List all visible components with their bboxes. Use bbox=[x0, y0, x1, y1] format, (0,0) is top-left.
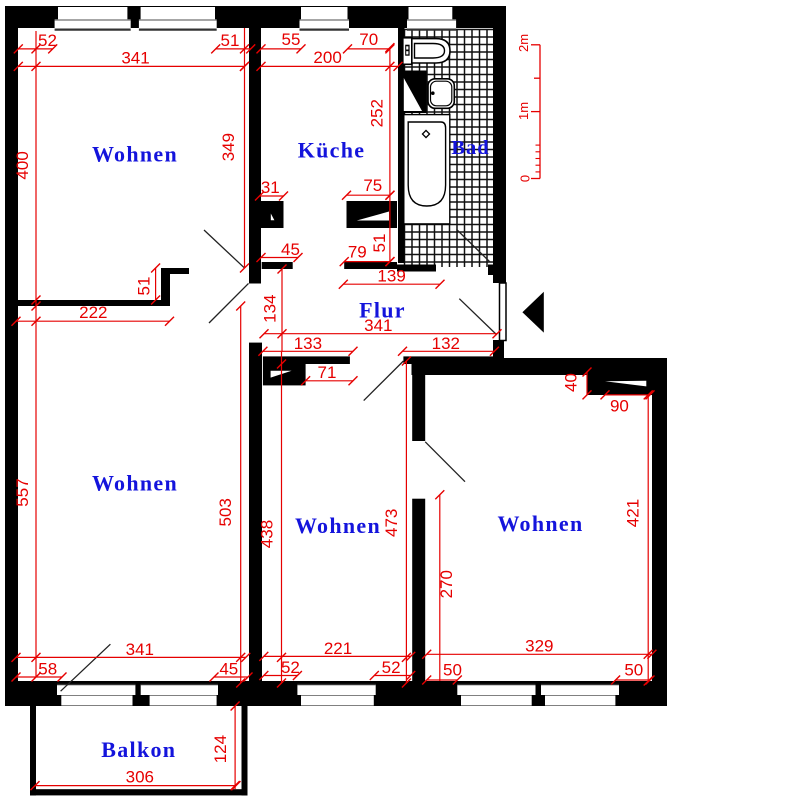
svg-text:50: 50 bbox=[443, 661, 462, 680]
svg-text:51: 51 bbox=[135, 277, 154, 296]
svg-text:45: 45 bbox=[281, 240, 300, 259]
svg-text:52: 52 bbox=[382, 658, 401, 677]
svg-text:2m: 2m bbox=[516, 34, 531, 52]
svg-text:70: 70 bbox=[359, 30, 378, 49]
svg-text:473: 473 bbox=[382, 509, 401, 537]
svg-text:503: 503 bbox=[216, 498, 235, 526]
svg-text:0: 0 bbox=[518, 175, 533, 182]
svg-text:Bad: Bad bbox=[451, 137, 489, 159]
svg-text:Wohnen: Wohnen bbox=[92, 142, 178, 167]
svg-text:52: 52 bbox=[281, 658, 300, 677]
svg-text:270: 270 bbox=[437, 570, 456, 598]
svg-text:Wohnen: Wohnen bbox=[92, 471, 178, 496]
svg-text:Balkon: Balkon bbox=[101, 737, 176, 762]
svg-text:400: 400 bbox=[13, 151, 32, 179]
svg-text:341: 341 bbox=[121, 49, 149, 68]
svg-text:79: 79 bbox=[348, 243, 367, 262]
svg-text:Wohnen: Wohnen bbox=[497, 511, 583, 536]
svg-text:306: 306 bbox=[126, 768, 154, 787]
svg-text:58: 58 bbox=[38, 660, 57, 679]
svg-text:438: 438 bbox=[257, 520, 276, 548]
svg-text:133: 133 bbox=[294, 334, 322, 353]
svg-text:Küche: Küche bbox=[298, 138, 366, 163]
svg-text:55: 55 bbox=[282, 30, 301, 49]
svg-text:45: 45 bbox=[219, 660, 238, 679]
svg-text:52: 52 bbox=[38, 31, 57, 50]
svg-text:132: 132 bbox=[432, 334, 460, 353]
svg-text:134: 134 bbox=[260, 295, 279, 323]
svg-text:Wohnen: Wohnen bbox=[295, 513, 381, 538]
svg-text:349: 349 bbox=[219, 133, 238, 161]
svg-text:222: 222 bbox=[79, 303, 107, 322]
svg-text:40: 40 bbox=[562, 373, 581, 392]
svg-text:51: 51 bbox=[370, 234, 389, 253]
svg-text:200: 200 bbox=[313, 48, 341, 67]
svg-text:139: 139 bbox=[377, 267, 405, 286]
svg-text:124: 124 bbox=[211, 735, 230, 763]
svg-text:50: 50 bbox=[624, 661, 643, 680]
svg-text:75: 75 bbox=[363, 176, 382, 195]
svg-text:90: 90 bbox=[610, 397, 629, 416]
svg-text:329: 329 bbox=[525, 637, 553, 656]
svg-text:557: 557 bbox=[13, 478, 32, 506]
svg-text:Flur: Flur bbox=[359, 298, 406, 323]
svg-text:1m: 1m bbox=[516, 102, 531, 120]
svg-text:421: 421 bbox=[623, 499, 642, 527]
svg-text:71: 71 bbox=[318, 363, 337, 382]
svg-text:252: 252 bbox=[368, 99, 387, 127]
svg-text:341: 341 bbox=[126, 640, 154, 659]
svg-text:51: 51 bbox=[221, 31, 240, 50]
svg-text:221: 221 bbox=[324, 639, 352, 658]
svg-text:31: 31 bbox=[261, 178, 280, 197]
